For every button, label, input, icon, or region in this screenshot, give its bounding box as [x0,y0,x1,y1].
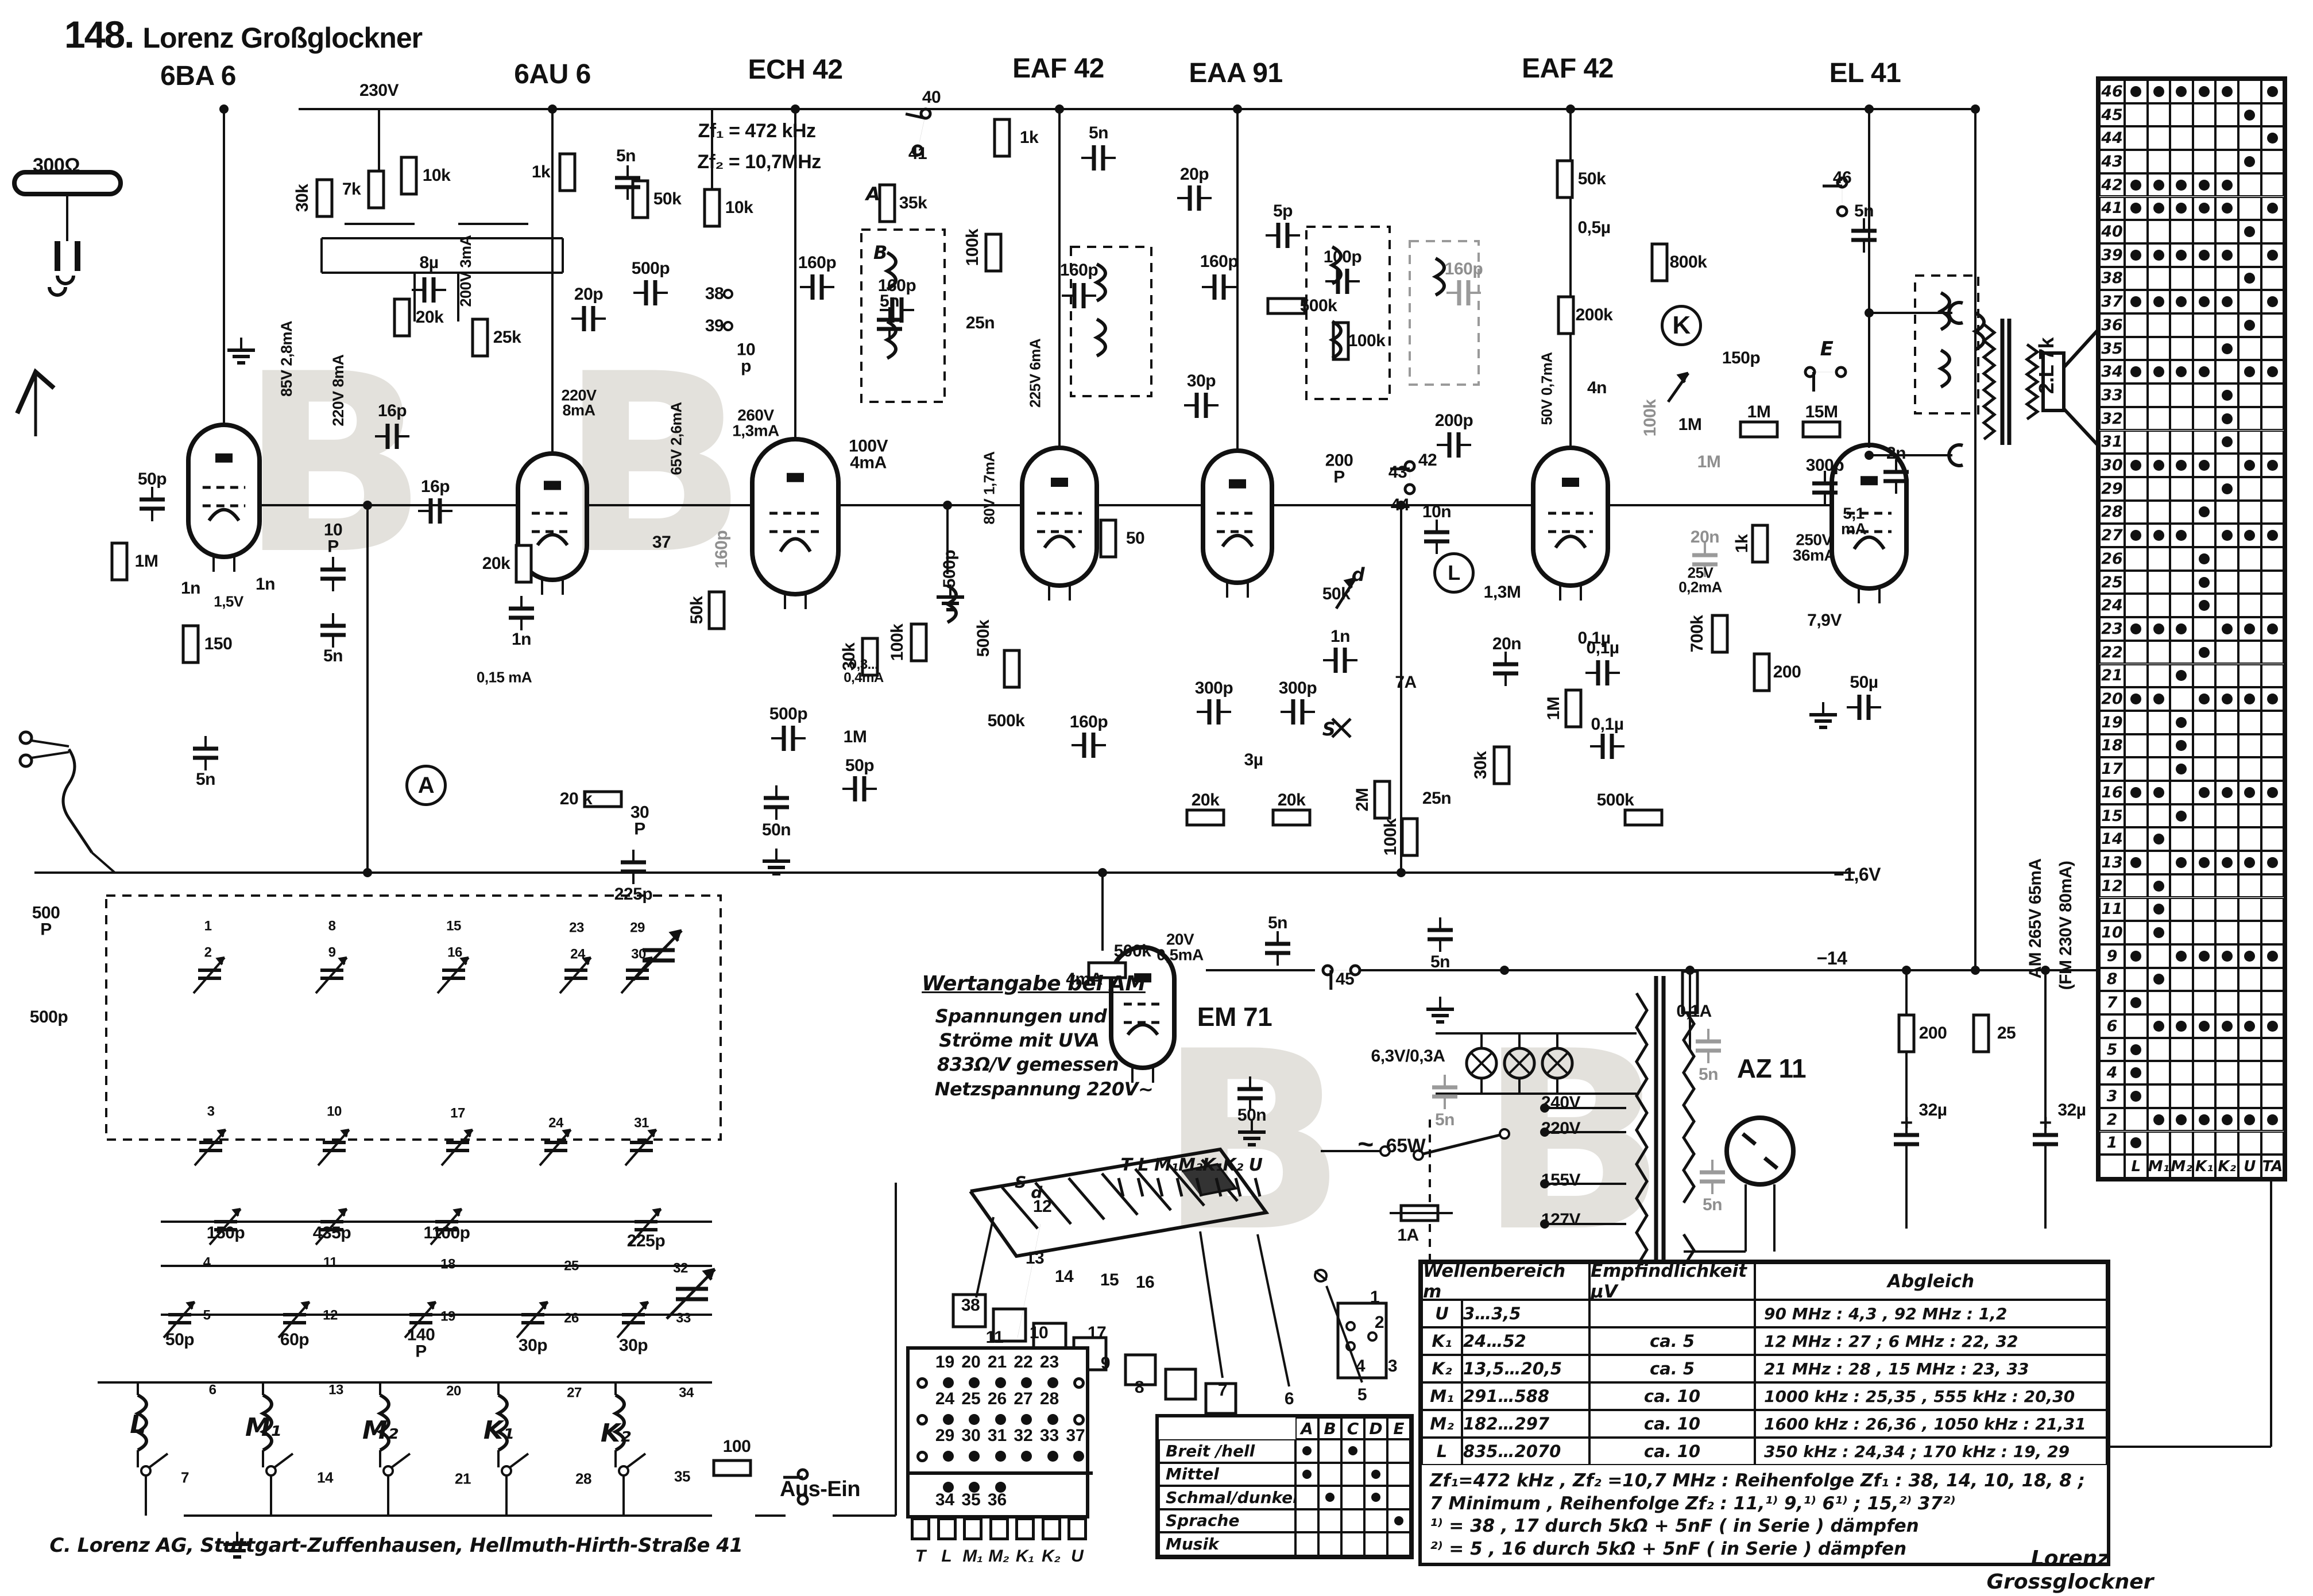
matrix-cell [2125,664,2148,688]
abgleich-cell: 1600 kHz : 26,36 , 1050 kHz : 21,31 [1755,1410,2107,1438]
sens-cell: ca. 10 [1589,1410,1755,1438]
annotation: 500k [1114,943,1151,960]
annotation: 11 [986,1330,1004,1346]
page-title: 148. Lorenz Großglockner [64,13,422,56]
annotation: 7A [1395,675,1416,691]
panel-tab-label: K₂ [1042,1547,1061,1566]
matrix-cell [2215,547,2238,571]
matrix-cell [2148,898,2171,921]
matrix-cell [2238,781,2261,804]
annotation: 20V 0,5mA [1156,932,1204,962]
annotation: 10 [327,1106,342,1119]
annotation: 10k [423,168,451,184]
annotation: 150p [207,1225,245,1242]
matrix-cell [2170,898,2193,921]
annotation: 225V 6mA [1028,339,1043,408]
matrix-cell: L [2125,1155,2148,1178]
matrix-cell [2238,1132,2261,1155]
matrix-cell [2148,1108,2171,1132]
annotation: A [866,185,880,203]
matrix-cell [2125,734,2148,758]
note-line: 7 Minimum , Reihenfolge Zf₂ : 11,¹⁾ 9,¹⁾… [1430,1493,2099,1516]
settings-cell [1364,1509,1387,1533]
matrix-cell [2261,991,2284,1014]
annotation: 20n [1691,529,1719,546]
matrix-cell: 46 [2099,80,2125,103]
annotation: 13 [1026,1250,1044,1267]
matrix-cell [2148,197,2171,220]
matrix-cell [2193,173,2216,197]
matrix-cell [2148,501,2171,524]
matrix-cell [2261,757,2284,781]
matrix-cell [2148,80,2171,103]
matrix-cell [2238,243,2261,267]
matrix-cell: 29 [2099,477,2125,501]
annotation: 50p [138,471,167,488]
matrix-cell [2238,944,2261,968]
annotation: 200V 3mA [459,235,474,307]
matrix-cell [2170,313,2193,337]
settings-cell [1364,1439,1387,1463]
matrix-cell [2238,898,2261,921]
matrix-cell [2261,197,2284,220]
annotation: 19 [440,1311,455,1324]
matrix-cell [2125,103,2148,127]
annotation: 3 [1388,1358,1397,1375]
annotation: 28 [575,1472,591,1486]
matrix-cell [2148,313,2171,337]
annotation: 1 [1370,1289,1379,1306]
matrix-cell [2238,617,2261,641]
matrix-cell: K₂ [2215,1155,2238,1178]
matrix-cell [2170,1014,2193,1038]
matrix-cell [2261,827,2284,851]
matrix-cell [2170,243,2193,267]
annotation: 16 [1136,1275,1154,1291]
annotation: 25n [966,315,995,332]
matrix-cell [2238,1084,2261,1108]
annotation: + [2039,1113,2052,1133]
matrix-cell [2148,757,2171,781]
matrix-cell [2238,968,2261,991]
matrix-cell [2261,407,2284,431]
matrix-cell [2193,431,2216,454]
annotation: 30p [619,1338,648,1354]
matrix-cell [2193,944,2216,968]
annotation: 300p [1279,680,1317,697]
annotation: 1k [1020,130,1038,146]
annotation: 2 [204,947,212,960]
matrix-cell: 26 [2099,547,2125,571]
matrix-cell [2261,898,2284,921]
matrix-cell [2170,477,2193,501]
annotation: 5n [196,772,215,788]
annotation: 2.L 7k [2037,338,2056,394]
matrix-cell [2148,781,2171,804]
matrix-cell [2215,968,2238,991]
annotation: 6 [1285,1391,1294,1408]
abgleich-cell: 12 MHz : 27 ; 6 MHz : 22, 32 [1755,1327,2107,1355]
annotation: 24 [548,1117,563,1130]
matrix-cell [2125,126,2148,150]
annotation: 500 P [32,905,60,938]
matrix-cell [2193,501,2216,524]
range-cell: 291…588 [1462,1382,1589,1410]
annotation: 100V 4mA [849,439,888,471]
matrix-cell: 25 [2099,571,2125,594]
annotation: 25k [493,330,521,346]
panel-number: 30 [961,1426,980,1446]
matrix-cell: 1 [2099,1132,2125,1155]
annotation: Spannungen und [935,1008,1107,1025]
matrix-cell [2125,150,2148,173]
matrix-cell [2238,991,2261,1014]
matrix-cell: 27 [2099,524,2125,547]
annotation: 230V [359,83,399,99]
annotation: 700k [1689,615,1706,653]
schematic-page: B BB B 148. Lorenz Großglockner 6BA 66AU… [0,0,2313,1596]
annotation: 50µ [1850,675,1878,691]
matrix-cell [2125,501,2148,524]
annotation: 33 [676,1312,691,1326]
matrix-cell [2148,431,2171,454]
matrix-cell [2238,1014,2261,1038]
matrix-cell [2148,804,2171,828]
annotation: 30 P [631,805,649,838]
annotation: 12 [1033,1199,1051,1215]
matrix-cell [2170,664,2193,688]
matrix-cell [2193,757,2216,781]
settings-cell [1295,1463,1318,1486]
matrix-cell [2170,524,2193,547]
matrix-cell [2193,150,2216,173]
col-header: Wellenbereich m [1422,1263,1589,1300]
matrix-cell [2261,337,2284,361]
annotation: 5n [1703,1197,1722,1214]
annotation: 2n [1886,446,1906,462]
annotation: 38 [705,286,724,303]
annotation: 150p [1722,350,1760,367]
annotation: 1,3M [1484,584,1521,601]
matrix-cell [2193,103,2216,127]
settings-cell: Breit /hell [1159,1439,1295,1463]
matrix-cell [2148,220,2171,243]
matrix-cell [2148,1061,2171,1084]
matrix-cell [2193,804,2216,828]
matrix-cell [2238,477,2261,501]
matrix-cell: 18 [2099,734,2125,758]
annotation: 65W [1386,1137,1425,1155]
matrix-cell [2238,1038,2261,1062]
matrix-cell [2261,641,2284,664]
matrix-cell [2170,851,2193,874]
matrix-cell [2193,243,2216,267]
panel-tab [1042,1517,1061,1540]
matrix-cell [2193,1084,2216,1108]
annotation: 5n [1430,954,1450,971]
matrix-cell [2148,1084,2171,1108]
matrix-cell: 23 [2099,617,2125,641]
matrix-cell [2215,383,2238,407]
matrix-cell [2261,874,2284,898]
panel-tab [911,1517,930,1540]
annotation: 500p [30,1009,68,1026]
annotation: 1M [1747,404,1771,421]
matrix-cell [2261,1132,2284,1155]
matrix-cell [2148,454,2171,477]
matrix-cell [2215,641,2238,664]
annotation: 200 [1773,664,1801,681]
matrix-cell [2261,103,2284,127]
matrix-cell [2215,874,2238,898]
matrix-cell: 28 [2099,501,2125,524]
settings-cell [1318,1439,1341,1463]
matrix-cell [2193,1038,2216,1062]
matrix-cell [2170,687,2193,711]
matrix-cell [2261,290,2284,313]
annotation: 16p [378,403,407,420]
annotation: 250V 36mA [1793,532,1835,563]
matrix-cell [2215,687,2238,711]
matrix-cell [2148,407,2171,431]
settings-cell [1318,1532,1341,1556]
matrix-cell [2215,150,2238,173]
matrix-cell [2215,1038,2238,1062]
annotation: 12 [323,1310,338,1323]
annotation: 14 [317,1471,333,1485]
matrix-cell [2148,1038,2171,1062]
matrix-cell: 39 [2099,243,2125,267]
annotation: 4 [1356,1358,1365,1375]
matrix-cell: 12 [2099,874,2125,898]
annotation: 35k [899,195,927,212]
annotation: 30p [1187,373,1216,390]
matrix-cell [2170,711,2193,734]
annotation: 50V 0,7mA [1540,352,1554,425]
annotation: 500p [942,550,958,588]
annotation: Wertangabe bei AM [922,974,1146,994]
sens-cell: ca. 5 [1589,1327,1755,1355]
matrix-cell [2148,944,2171,968]
settings-cell [1295,1439,1318,1463]
annotation: 7k [342,181,361,198]
matrix-cell [2238,874,2261,898]
annotation: 13 [328,1384,343,1397]
annotation: 1100p [424,1225,470,1242]
annotation: 34 [679,1387,694,1400]
matrix-cell [2215,571,2238,594]
matrix-cell [2215,1132,2238,1155]
annotation: 8 [328,920,336,933]
matrix-cell [2193,991,2216,1014]
annotation: 30p [519,1338,547,1354]
abgleich-cell: 1000 kHz : 25,35 , 555 kHz : 20,30 [1755,1382,2107,1410]
matrix-cell [2238,173,2261,197]
matrix-cell [2170,734,2193,758]
annotation: Netzspannung 220V~ [935,1080,1154,1098]
annotation: 2M [1355,788,1371,812]
matrix-cell: 8 [2099,968,2125,991]
matrix-cell [2125,991,2148,1014]
matrix-cell: 16 [2099,781,2125,804]
settings-cell [1159,1417,1295,1439]
connection-matrix: 4645444342414039383736353433323130292827… [2096,76,2287,1181]
panel-tab-label: L [941,1547,951,1566]
annotation: 3 [207,1106,215,1119]
matrix-cell [2215,804,2238,828]
matrix-cell [2125,337,2148,361]
annotation: 43 [1388,464,1407,481]
matrix-cell: 24 [2099,594,2125,617]
matrix-cell [2238,103,2261,127]
matrix-cell [2238,454,2261,477]
annotation: EAF 42 [1522,56,1614,82]
matrix-cell [2125,757,2148,781]
matrix-cell: U [2238,1155,2261,1178]
matrix-cell [2170,968,2193,991]
annotation: T L M₁M₂K₁K₂ U [1120,1157,1262,1174]
matrix-cell [2170,173,2193,197]
matrix-cell [2193,851,2216,874]
annotation: 500k [1300,298,1337,315]
band-cell: M₁ [1422,1382,1462,1410]
matrix-cell [2170,337,2193,361]
band-cell: L [1422,1438,1462,1465]
annotation: 50 [1126,530,1144,547]
matrix-cell [2148,360,2171,383]
matrix-cell [2125,80,2148,103]
matrix-cell: 11 [2099,898,2125,921]
annotation: 0,5µ [1578,220,1611,237]
settings-cell [1364,1463,1387,1486]
annotation: K [1661,305,1702,346]
matrix-cell [2261,547,2284,571]
annotation: 500k [988,713,1025,730]
matrix-cell [2238,150,2261,173]
matrix-cell [2125,220,2148,243]
matrix-cell [2193,383,2216,407]
matrix-cell: 17 [2099,757,2125,781]
matrix-cell: 33 [2099,383,2125,407]
matrix-cell [2261,383,2284,407]
matrix-cell [2125,874,2148,898]
matrix-cell: 45 [2099,103,2125,127]
matrix-cell [2238,313,2261,337]
matrix-cell: 5 [2099,1038,2125,1062]
matrix-cell [2125,1038,2148,1062]
matrix-cell [2215,501,2238,524]
matrix-cell [2215,991,2238,1014]
matrix-cell [2215,337,2238,361]
matrix-cell [2261,781,2284,804]
matrix-cell [2215,126,2238,150]
matrix-cell [2261,1084,2284,1108]
matrix-cell [2125,290,2148,313]
matrix-cell [2148,734,2171,758]
matrix-cell [2261,313,2284,337]
panel-number: 28 [1040,1389,1059,1409]
annotation: 500k [1597,792,1634,809]
matrix-cell [2193,454,2216,477]
panel-tab-label: M₂ [988,1547,1009,1566]
matrix-cell [2125,267,2148,290]
matrix-cell [2261,220,2284,243]
annotation: 5 [1357,1387,1367,1404]
matrix-cell [2193,477,2216,501]
panel-number: 31 [988,1426,1007,1446]
settings-cell [1387,1463,1410,1486]
settings-cell: E [1387,1417,1410,1439]
matrix-cell [2148,173,2171,197]
settings-cell [1364,1486,1387,1509]
panel-tab [937,1517,957,1540]
annotation: 8 [1135,1380,1144,1396]
matrix-cell: 38 [2099,267,2125,290]
matrix-cell [2238,267,2261,290]
annotation: 1M [1546,697,1562,720]
annotation: 32 [673,1262,688,1276]
annotation: 20p [1180,166,1209,183]
panel-number: 24 [935,1389,954,1409]
annotation: 5n [1699,1067,1718,1083]
annotation: 260V 1,3mA [732,408,779,438]
annotation: ECH 42 [748,57,842,83]
panel-number: 35 [961,1490,980,1510]
col-header: Empfindlichkeit µV [1589,1263,1755,1300]
matrix-cell [2148,150,2171,173]
annotation: 10n [1422,504,1451,521]
matrix-cell [2238,290,2261,313]
annotation: 6AU 6 [514,61,591,88]
matrix-cell: 40 [2099,220,2125,243]
annotation: 20 k [560,791,592,808]
settings-cell [1341,1463,1364,1486]
matrix-cell [2215,431,2238,454]
annotation: A [405,765,447,806]
annotation: 1,5V [214,595,243,609]
annotation: AM 265V 65mA [2028,858,2044,978]
matrix-cell [2125,383,2148,407]
matrix-cell [2125,968,2148,991]
matrix-cell [2193,360,2216,383]
matrix-cell [2193,921,2216,944]
matrix-cell [2125,243,2148,267]
matrix-cell [2148,968,2171,991]
matrix-cell [2125,1132,2148,1155]
panel-number: 27 [1014,1389,1032,1409]
note-line: ¹⁾ = 38 , 17 durch 5kΩ + 5nF ( in Serie … [1430,1515,2099,1538]
matrix-cell [2125,617,2148,641]
annotation: 41 [908,146,927,162]
matrix-cell: M₁ [2148,1155,2171,1178]
range-cell: 835…2070 [1462,1438,1589,1465]
matrix-cell [2238,383,2261,407]
settings-cell: Schmal/dunkel [1159,1486,1295,1509]
annotation: 50k [1322,586,1351,603]
annotation: 1M [135,553,158,570]
tone-settings-table: ABCDEBreit /hellMittelSchmal/dunkelSprac… [1155,1414,1414,1559]
settings-cell [1341,1509,1364,1533]
schematic-name: Lorenz Großglockner [142,21,422,55]
matrix-cell [2238,804,2261,828]
matrix-cell [2148,617,2171,641]
matrix-cell [2148,664,2171,688]
annotation: B [873,244,887,261]
matrix-cell [2215,524,2238,547]
matrix-cell [2193,407,2216,431]
band-cell: K₁ [1422,1327,1462,1355]
matrix-cell: 34 [2099,360,2125,383]
